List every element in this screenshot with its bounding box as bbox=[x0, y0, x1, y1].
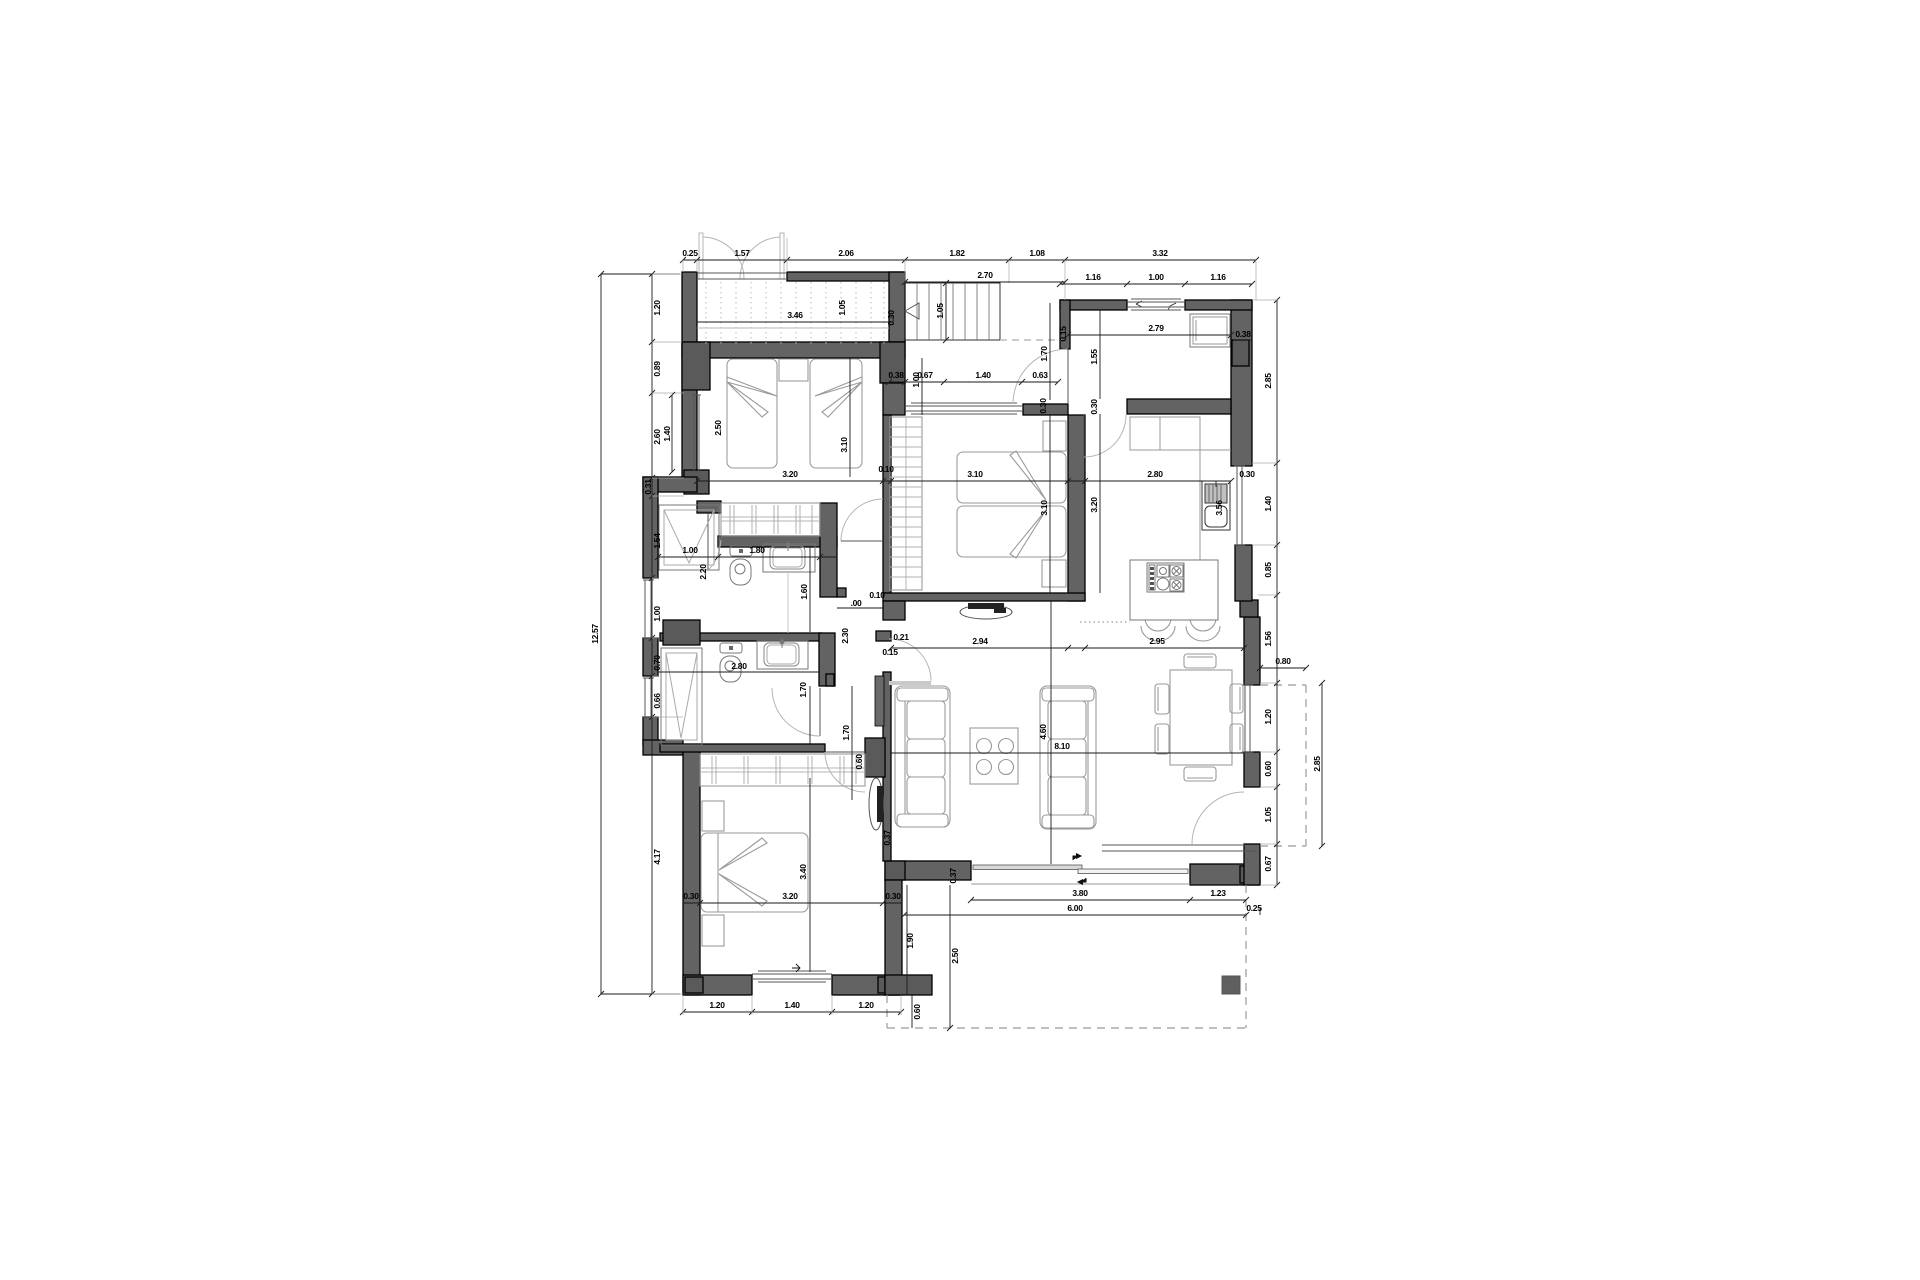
svg-text:0.63: 0.63 bbox=[1032, 370, 1048, 380]
svg-text:0.15: 0.15 bbox=[1058, 326, 1068, 342]
svg-text:2.80: 2.80 bbox=[731, 661, 747, 671]
svg-text:0.31: 0.31 bbox=[643, 479, 653, 495]
svg-text:1.70: 1.70 bbox=[798, 682, 808, 698]
svg-text:3.10: 3.10 bbox=[839, 437, 849, 453]
svg-text:1.55: 1.55 bbox=[1089, 349, 1099, 365]
svg-text:8.10: 8.10 bbox=[1054, 741, 1070, 751]
svg-text:1.05: 1.05 bbox=[837, 300, 847, 316]
svg-text:0.15: 0.15 bbox=[882, 647, 898, 657]
svg-text:4.60: 4.60 bbox=[1038, 724, 1048, 740]
svg-text:0.30: 0.30 bbox=[1038, 398, 1048, 414]
svg-text:1.40: 1.40 bbox=[1263, 496, 1273, 512]
svg-text:1.40: 1.40 bbox=[975, 370, 991, 380]
svg-text:0.37: 0.37 bbox=[948, 868, 958, 884]
svg-text:3.56: 3.56 bbox=[1214, 500, 1224, 516]
svg-text:0.89: 0.89 bbox=[652, 361, 662, 377]
svg-text:0.21: 0.21 bbox=[893, 632, 909, 642]
svg-text:0.60: 0.60 bbox=[1263, 761, 1273, 777]
svg-text:1.00: 1.00 bbox=[652, 606, 662, 622]
svg-text:0.30: 0.30 bbox=[886, 310, 896, 326]
svg-text:1.90: 1.90 bbox=[905, 933, 915, 949]
svg-text:0.30: 0.30 bbox=[683, 891, 699, 901]
svg-text:1.20: 1.20 bbox=[709, 1000, 725, 1010]
svg-text:1.00: 1.00 bbox=[1148, 272, 1164, 282]
svg-text:1.80: 1.80 bbox=[749, 545, 765, 555]
svg-text:3.10: 3.10 bbox=[967, 469, 983, 479]
svg-text:1.70: 1.70 bbox=[1039, 346, 1049, 362]
svg-text:0.10: 0.10 bbox=[878, 464, 894, 474]
svg-text:1.16: 1.16 bbox=[1210, 272, 1226, 282]
svg-text:2.50: 2.50 bbox=[950, 948, 960, 964]
svg-text:2.94: 2.94 bbox=[972, 636, 988, 646]
svg-text:1.05: 1.05 bbox=[935, 303, 945, 319]
svg-text:0.38: 0.38 bbox=[888, 370, 904, 380]
svg-text:.00: .00 bbox=[851, 598, 862, 608]
svg-text:1.20: 1.20 bbox=[858, 1000, 874, 1010]
svg-text:0.25: 0.25 bbox=[682, 248, 698, 258]
svg-text:2.79: 2.79 bbox=[1148, 323, 1164, 333]
svg-text:1.40: 1.40 bbox=[662, 426, 672, 442]
svg-text:1.20: 1.20 bbox=[1263, 709, 1273, 725]
svg-text:0.66: 0.66 bbox=[652, 693, 662, 709]
svg-text:2.06: 2.06 bbox=[838, 248, 854, 258]
svg-text:2.30: 2.30 bbox=[840, 628, 850, 644]
svg-text:12.57: 12.57 bbox=[590, 624, 600, 644]
svg-text:0.37: 0.37 bbox=[882, 830, 892, 846]
svg-text:3.20: 3.20 bbox=[782, 469, 798, 479]
svg-text:3.80: 3.80 bbox=[1072, 888, 1088, 898]
svg-text:3.32: 3.32 bbox=[1152, 248, 1168, 258]
svg-text:1.56: 1.56 bbox=[1263, 631, 1273, 647]
svg-text:3.10: 3.10 bbox=[1039, 500, 1049, 516]
svg-text:1.08: 1.08 bbox=[1029, 248, 1045, 258]
svg-text:0.60: 0.60 bbox=[912, 1004, 922, 1020]
svg-text:1.40: 1.40 bbox=[784, 1000, 800, 1010]
svg-text:0.70: 0.70 bbox=[652, 655, 662, 671]
svg-text:6.00: 6.00 bbox=[1067, 903, 1083, 913]
svg-text:0.10: 0.10 bbox=[869, 590, 885, 600]
svg-text:1.05: 1.05 bbox=[1263, 807, 1273, 823]
svg-text:3.46: 3.46 bbox=[787, 310, 803, 320]
svg-text:1.00: 1.00 bbox=[682, 545, 698, 555]
svg-text:0.30: 0.30 bbox=[885, 891, 901, 901]
svg-text:0.80: 0.80 bbox=[1275, 656, 1291, 666]
svg-text:2.95: 2.95 bbox=[1149, 636, 1165, 646]
svg-text:0.60: 0.60 bbox=[854, 754, 864, 770]
svg-text:1.82: 1.82 bbox=[949, 248, 965, 258]
svg-text:3.20: 3.20 bbox=[1089, 497, 1099, 513]
svg-text:2.20: 2.20 bbox=[698, 564, 708, 580]
svg-text:0.38: 0.38 bbox=[1235, 329, 1251, 339]
svg-text:1.57: 1.57 bbox=[734, 248, 750, 258]
svg-text:1.16: 1.16 bbox=[1085, 272, 1101, 282]
svg-text:3.40: 3.40 bbox=[798, 864, 808, 880]
svg-text:1.54: 1.54 bbox=[652, 533, 662, 549]
svg-text:2.85: 2.85 bbox=[1312, 756, 1322, 772]
svg-text:0.67: 0.67 bbox=[917, 370, 933, 380]
svg-text:2.80: 2.80 bbox=[1147, 469, 1163, 479]
svg-text:3.20: 3.20 bbox=[782, 891, 798, 901]
svg-text:2.85: 2.85 bbox=[1263, 373, 1273, 389]
svg-text:0.85: 0.85 bbox=[1263, 562, 1273, 578]
svg-text:0.30: 0.30 bbox=[1239, 469, 1255, 479]
svg-text:0.67: 0.67 bbox=[1263, 856, 1273, 872]
svg-text:2.60: 2.60 bbox=[652, 429, 662, 445]
svg-text:0.30: 0.30 bbox=[1089, 399, 1099, 415]
svg-text:4.17: 4.17 bbox=[652, 849, 662, 865]
svg-text:1.70: 1.70 bbox=[841, 725, 851, 741]
svg-text:2.70: 2.70 bbox=[977, 270, 993, 280]
svg-text:1.23: 1.23 bbox=[1210, 888, 1226, 898]
svg-text:1.60: 1.60 bbox=[799, 584, 809, 600]
svg-text:1.20: 1.20 bbox=[652, 300, 662, 316]
svg-text:2.50: 2.50 bbox=[713, 420, 723, 436]
